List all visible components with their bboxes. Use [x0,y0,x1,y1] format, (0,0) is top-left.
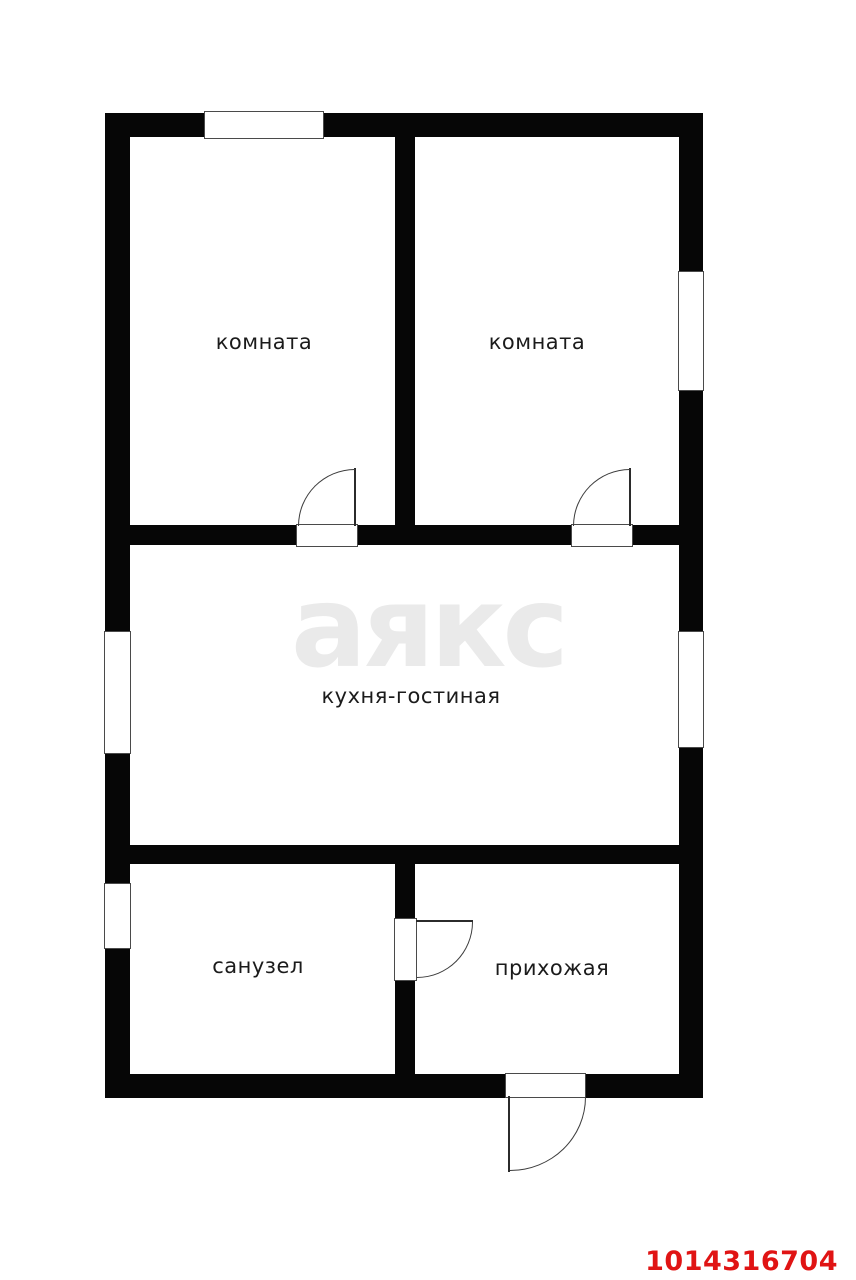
window-right-kitchen-icon [678,631,704,748]
listing-id: 1014316704 [645,1246,838,1277]
window-right-room-2-icon [678,271,704,391]
wall-between-rooms [395,137,415,545]
label-bathroom: санузел [188,954,328,978]
door-room-1-swing-icon [298,469,355,526]
wall-exterior-right [679,113,703,1098]
door-entrance-opening [505,1073,586,1098]
label-room-2: комната [467,330,607,354]
door-bathroom-opening [394,918,417,981]
wall-exterior-bottom [105,1074,703,1098]
wall-exterior-left [105,113,130,1098]
door-room-1-opening [296,524,358,547]
window-top-room-1-icon [204,111,324,139]
label-room-1: комната [194,330,334,354]
label-hallway: прихожая [482,956,622,980]
door-room-2-swing-icon [573,469,630,526]
window-left-bathroom-icon [104,883,131,949]
door-entrance-swing-icon [510,1097,586,1171]
wall-exterior-top [105,113,703,137]
door-room-2-opening [571,524,633,547]
window-left-kitchen-icon [104,631,131,754]
agency-watermark: аякс [258,566,598,696]
floor-plan-page: аякс комната комната кухня-гостиная сану… [0,0,856,1280]
wall-kitchen-lower-rooms [129,845,680,864]
label-kitchen-living: кухня-гостиная [311,684,511,708]
door-bathroom-swing-icon [417,922,473,978]
